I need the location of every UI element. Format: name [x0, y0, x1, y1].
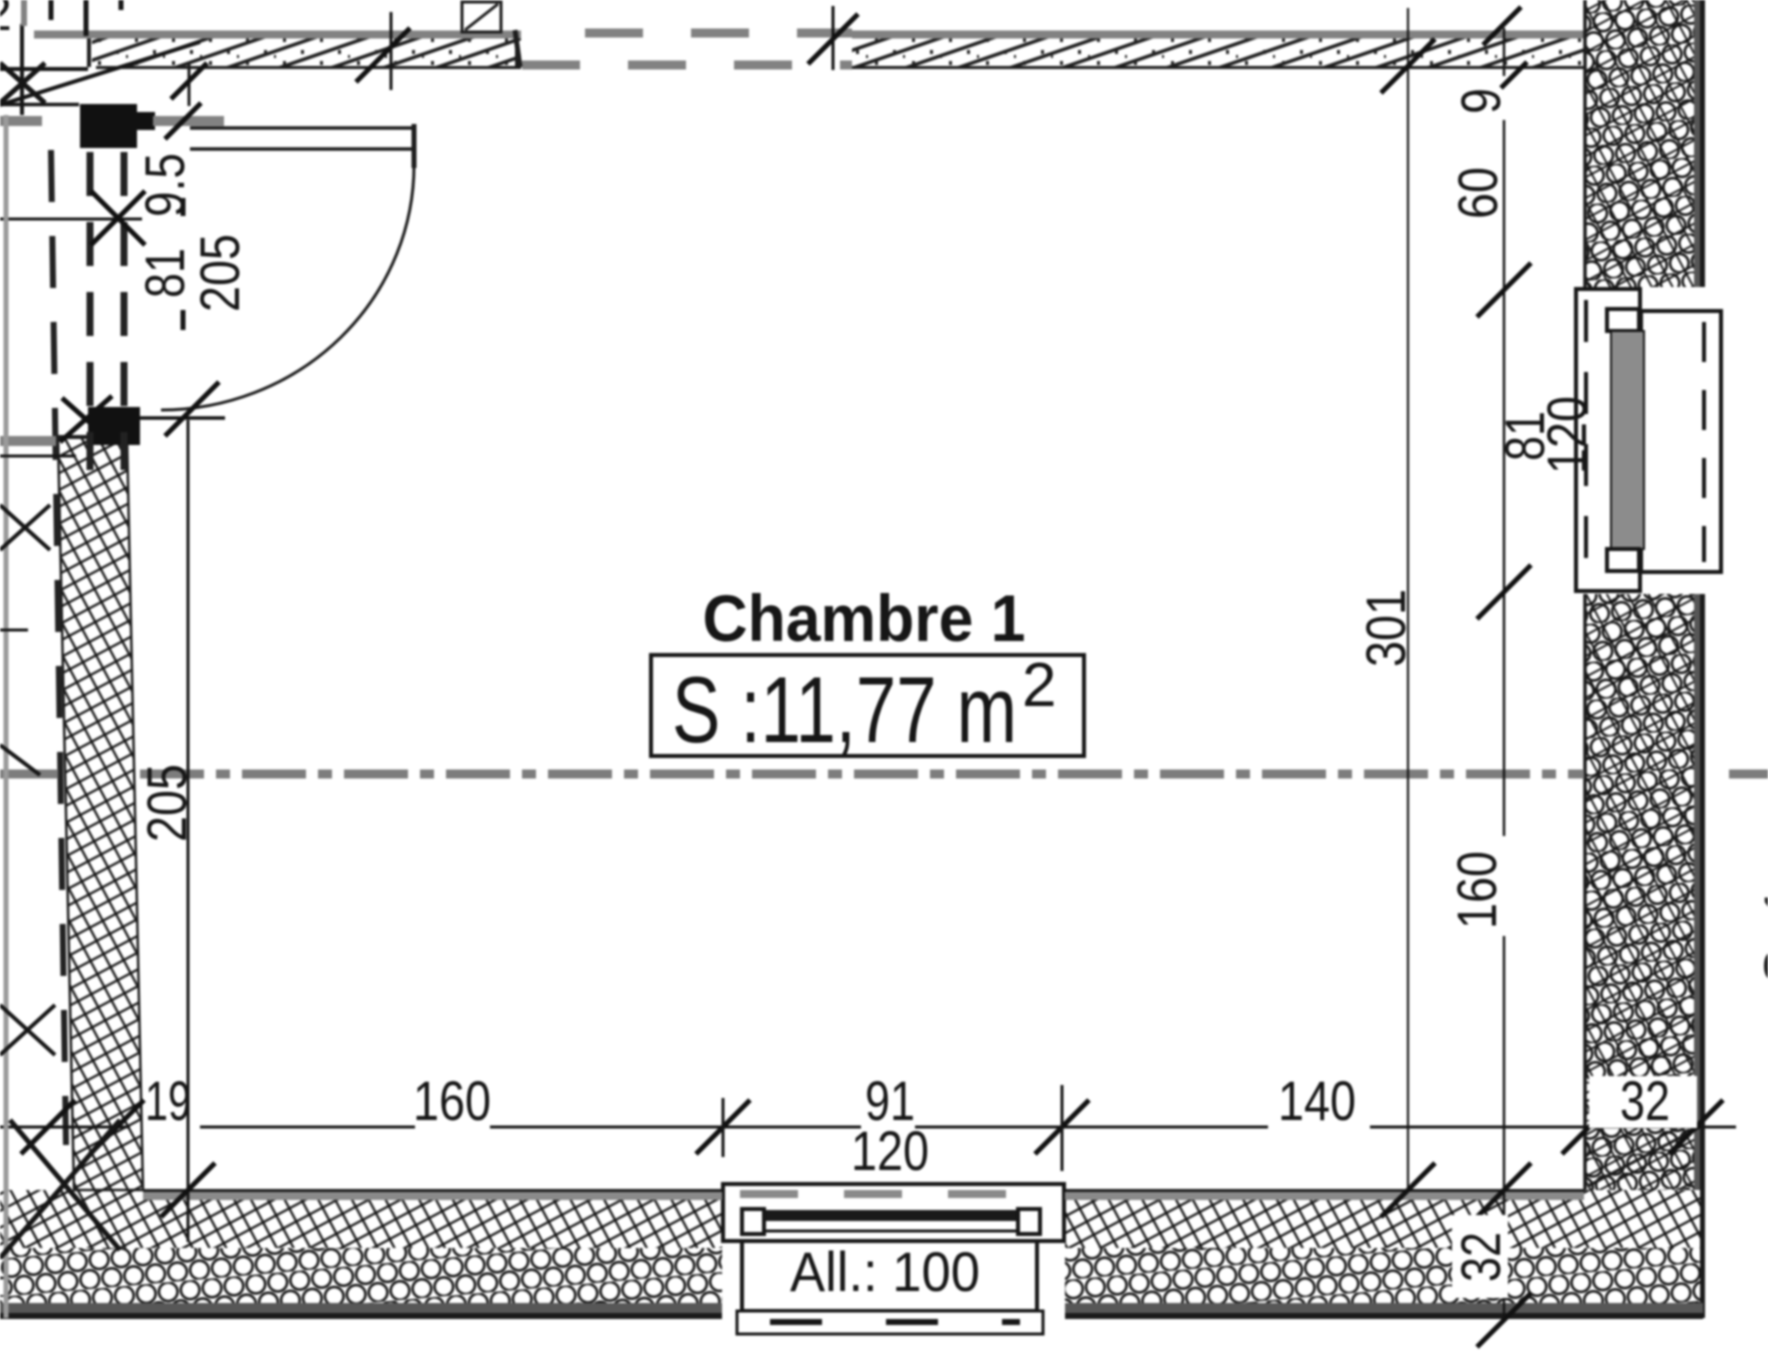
svg-text:32: 32 [1449, 1232, 1512, 1282]
svg-text:205: 205 [135, 764, 198, 842]
svg-text:32: 32 [1620, 1069, 1670, 1132]
svg-text:2: 2 [0, 0, 12, 41]
svg-text:120: 120 [1535, 396, 1598, 474]
svg-text:140: 140 [1278, 1069, 1356, 1132]
svg-text:301: 301 [1354, 589, 1417, 667]
svg-text:9.5: 9.5 [133, 153, 196, 217]
svg-text:S :11,77 m: S :11,77 m [672, 657, 1017, 762]
svg-text:All.: 100: All.: 100 [790, 1240, 980, 1303]
svg-text:60: 60 [1446, 167, 1509, 219]
svg-text:160: 160 [1445, 851, 1508, 929]
svg-text:160: 160 [413, 1069, 491, 1132]
svg-text:81: 81 [133, 248, 196, 298]
svg-text:2: 2 [1022, 651, 1056, 720]
svg-text:9: 9 [1449, 88, 1512, 114]
svg-text:120: 120 [851, 1119, 929, 1182]
svg-text:205: 205 [188, 234, 251, 312]
svg-text:Chambre 1: Chambre 1 [703, 581, 1026, 655]
svg-text:19: 19 [145, 1069, 191, 1132]
svg-text:S :1: S :1 [1752, 885, 1768, 985]
